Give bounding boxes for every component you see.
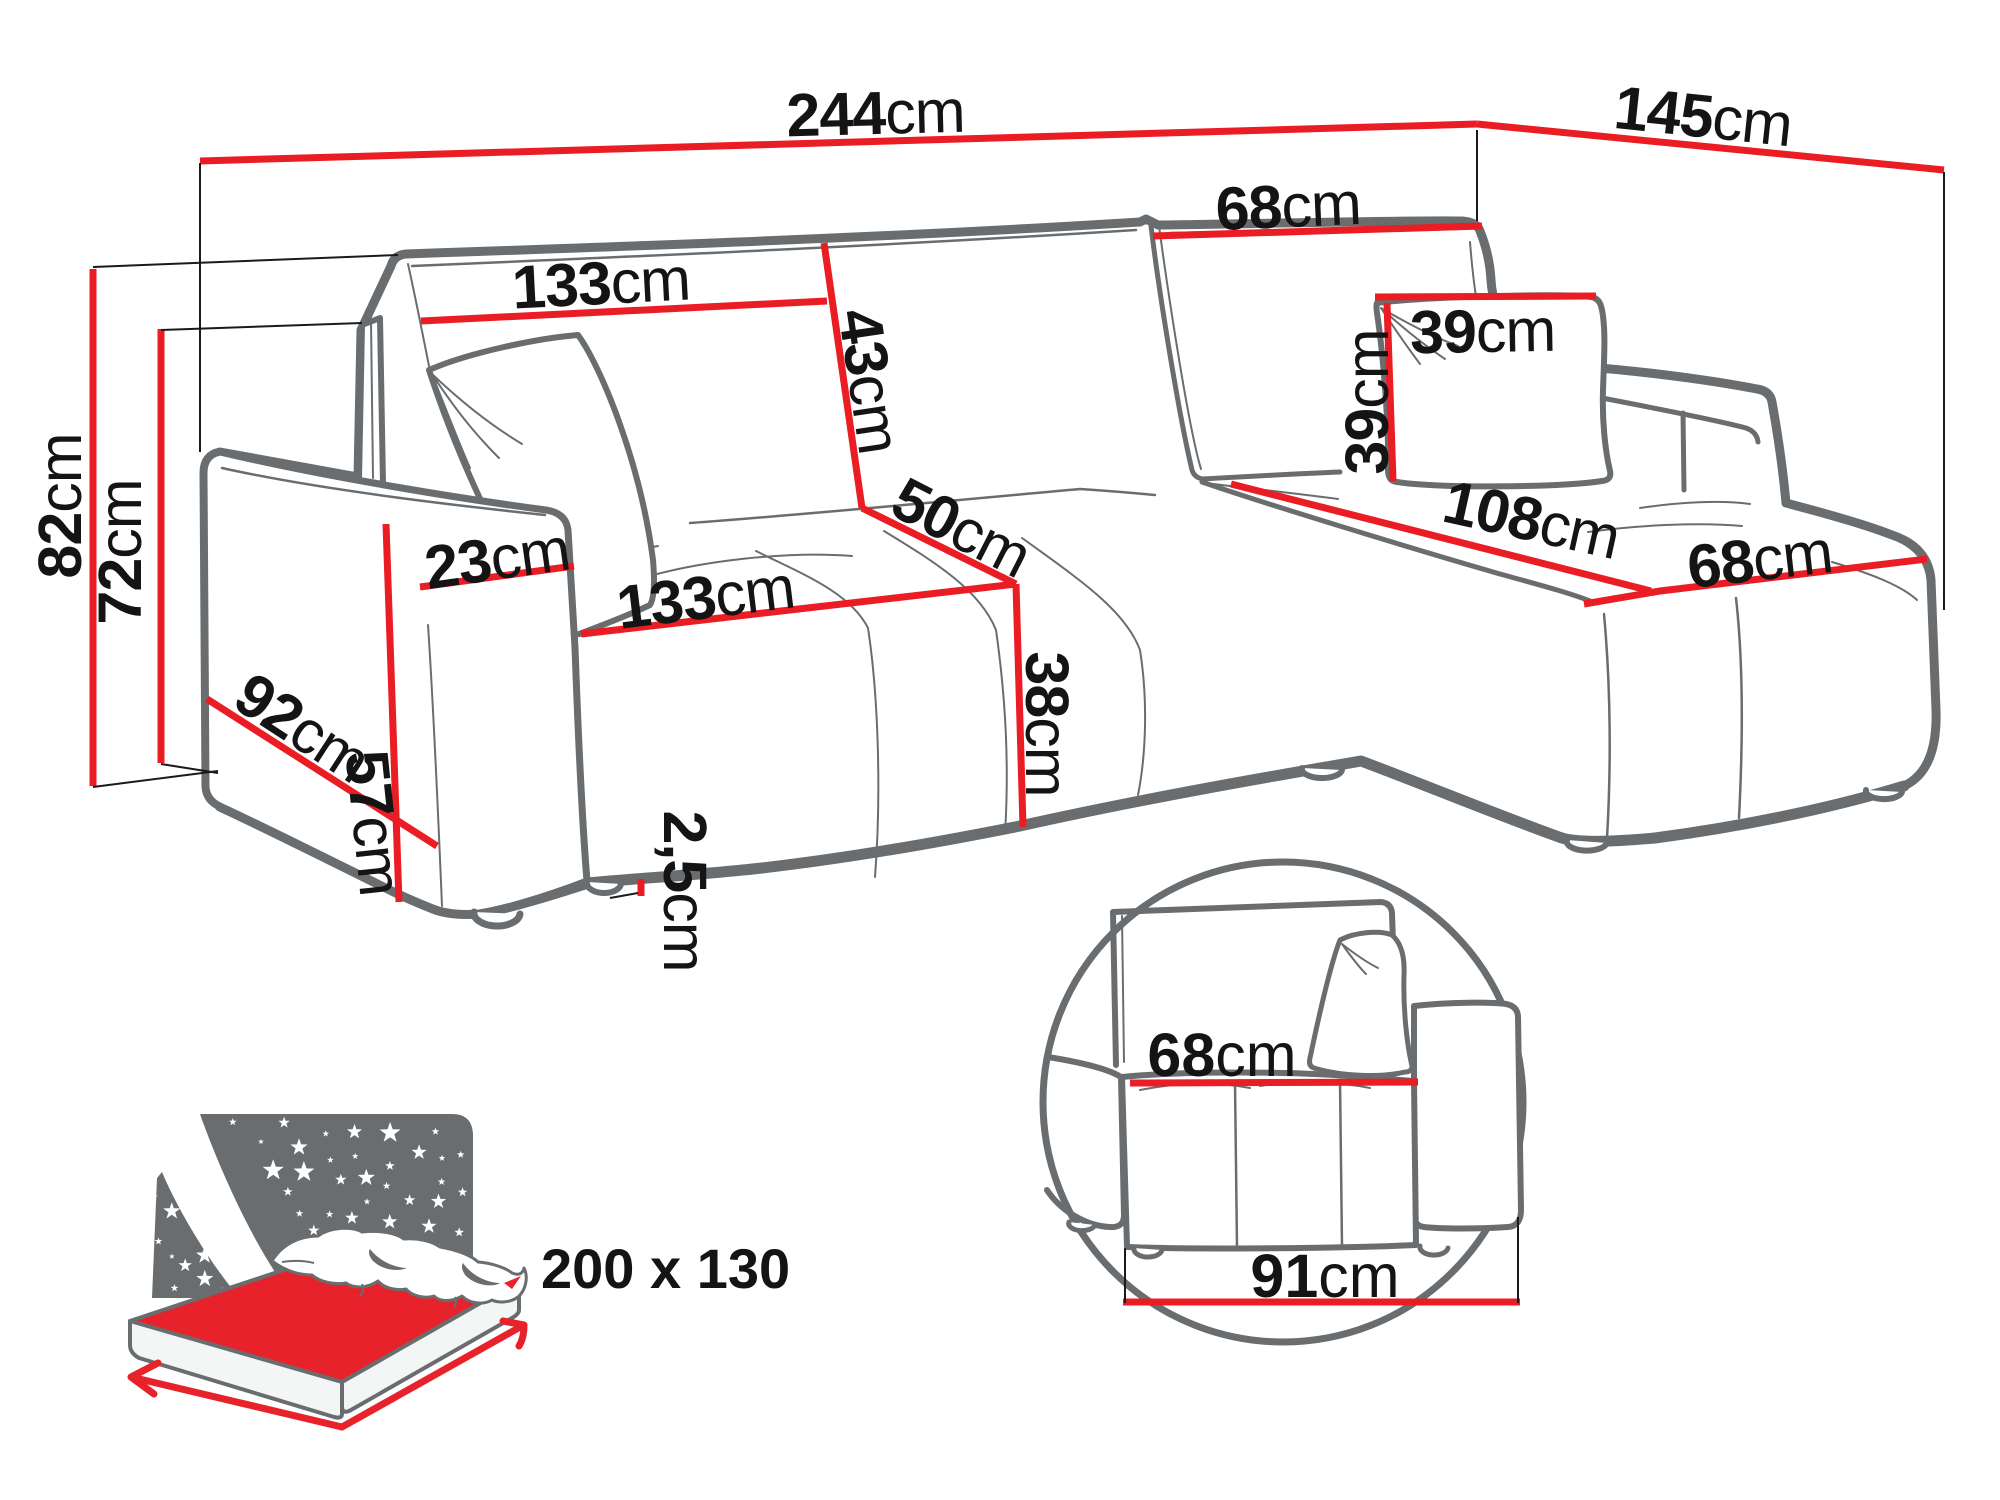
svg-text:91cm: 91cm bbox=[1250, 1242, 1399, 1310]
svg-text:68cm: 68cm bbox=[1214, 169, 1362, 243]
svg-text:68cm: 68cm bbox=[1147, 1021, 1296, 1089]
svg-text:39cm: 39cm bbox=[1409, 296, 1555, 367]
svg-text:38cm: 38cm bbox=[1013, 651, 1081, 796]
svg-text:39cm: 39cm bbox=[1333, 329, 1401, 474]
svg-text:2,5cm: 2,5cm bbox=[651, 810, 719, 971]
svg-text:200 x 130: 200 x 130 bbox=[541, 1237, 790, 1300]
svg-text:72cm: 72cm bbox=[86, 479, 154, 624]
svg-text:82cm: 82cm bbox=[26, 433, 94, 578]
svg-text:133cm: 133cm bbox=[510, 244, 691, 321]
svg-text:244cm: 244cm bbox=[786, 77, 966, 150]
